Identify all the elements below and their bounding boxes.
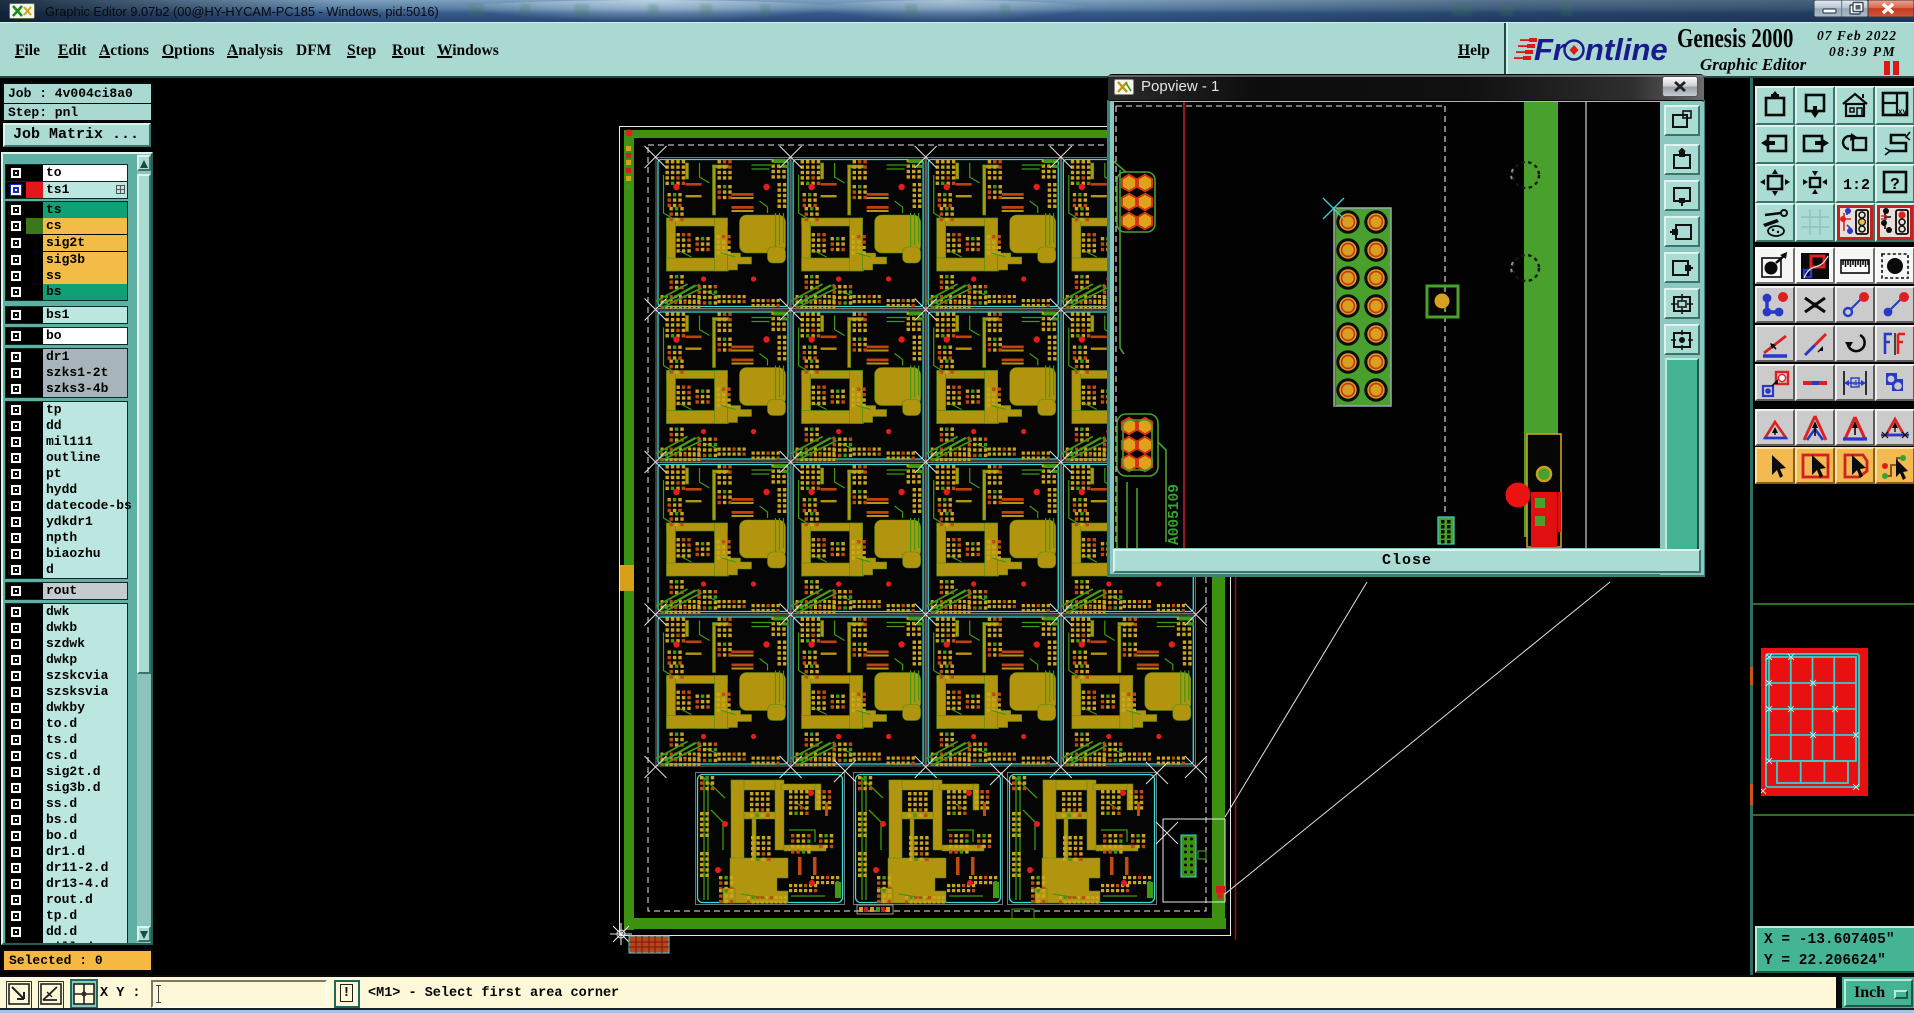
svg-text:4: 4 [1853,379,1858,388]
svg-text:1:2: 1:2 [1843,177,1870,194]
svg-text:A005109: A005109 [1167,484,1183,545]
svg-text:Fr: Fr [1534,32,1567,67]
svg-text:xy: xy [1898,107,1907,116]
svg-text:?: ? [1890,176,1900,193]
svg-text:ntline: ntline [1585,32,1668,67]
